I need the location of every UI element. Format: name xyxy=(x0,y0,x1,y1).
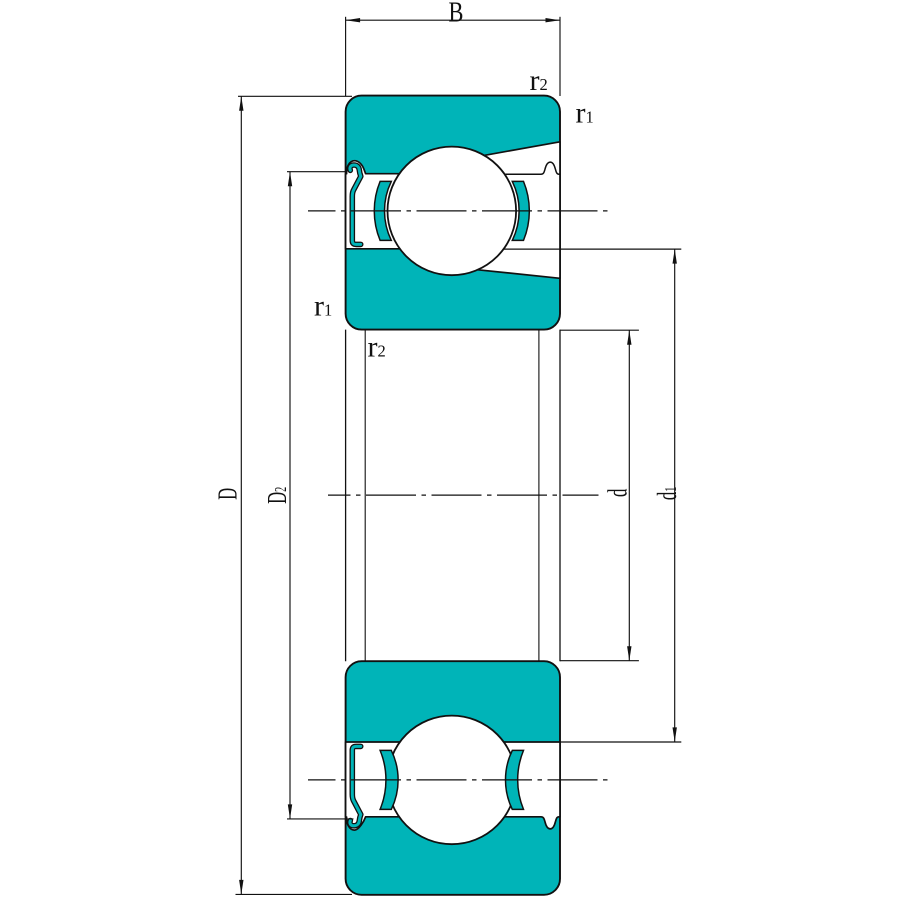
svg-text:d: d xyxy=(603,489,633,497)
svg-text:D: D xyxy=(213,488,243,500)
svg-text:B: B xyxy=(449,0,464,28)
